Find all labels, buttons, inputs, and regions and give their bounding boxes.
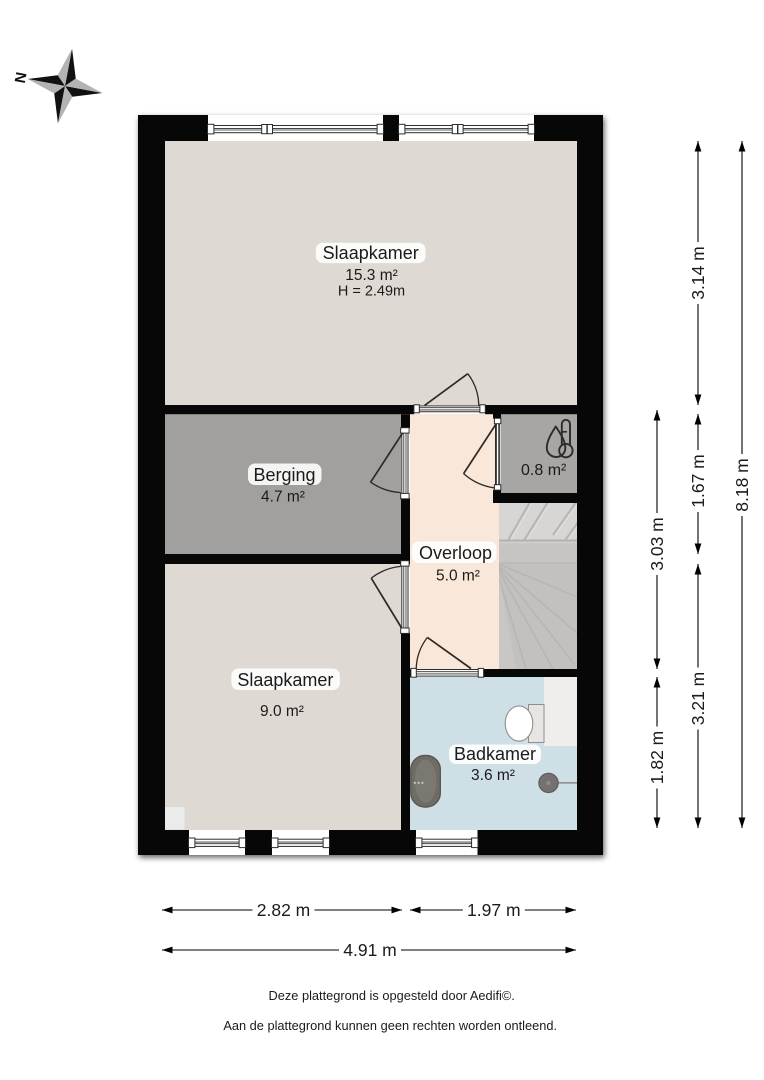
svg-text:1.82 m: 1.82 m [647, 731, 667, 785]
svg-text:2.82 m: 2.82 m [257, 900, 311, 920]
svg-text:Slaapkamer: Slaapkamer [237, 670, 333, 690]
svg-text:4.91 m: 4.91 m [343, 940, 397, 960]
svg-text:4.7 m²: 4.7 m² [261, 489, 305, 506]
svg-text:Berging: Berging [253, 465, 315, 485]
svg-text:Aan de plattegrond kunnen geen: Aan de plattegrond kunnen geen rechten w… [223, 1018, 557, 1033]
svg-text:3.03 m: 3.03 m [647, 517, 667, 571]
svg-text:0.8 m²: 0.8 m² [521, 462, 567, 479]
svg-text:3.14 m: 3.14 m [688, 246, 708, 300]
svg-text:H = 2.49m: H = 2.49m [338, 283, 405, 299]
svg-text:8.18 m: 8.18 m [732, 458, 752, 512]
svg-text:Slaapkamer: Slaapkamer [323, 243, 419, 263]
svg-text:Overloop: Overloop [419, 543, 492, 563]
svg-text:Badkamer: Badkamer [454, 744, 536, 764]
svg-text:Deze plattegrond is opgesteld: Deze plattegrond is opgesteld door Aedif… [269, 988, 515, 1003]
svg-text:3.21 m: 3.21 m [688, 672, 708, 726]
svg-text:1.97 m: 1.97 m [467, 900, 521, 920]
svg-text:3.6 m²: 3.6 m² [471, 767, 515, 784]
svg-text:15.3 m²: 15.3 m² [345, 267, 398, 284]
svg-text:N: N [12, 71, 31, 85]
svg-text:9.0 m²: 9.0 m² [260, 703, 304, 720]
svg-text:1.67 m: 1.67 m [688, 454, 708, 508]
svg-text:5.0 m²: 5.0 m² [436, 568, 480, 585]
